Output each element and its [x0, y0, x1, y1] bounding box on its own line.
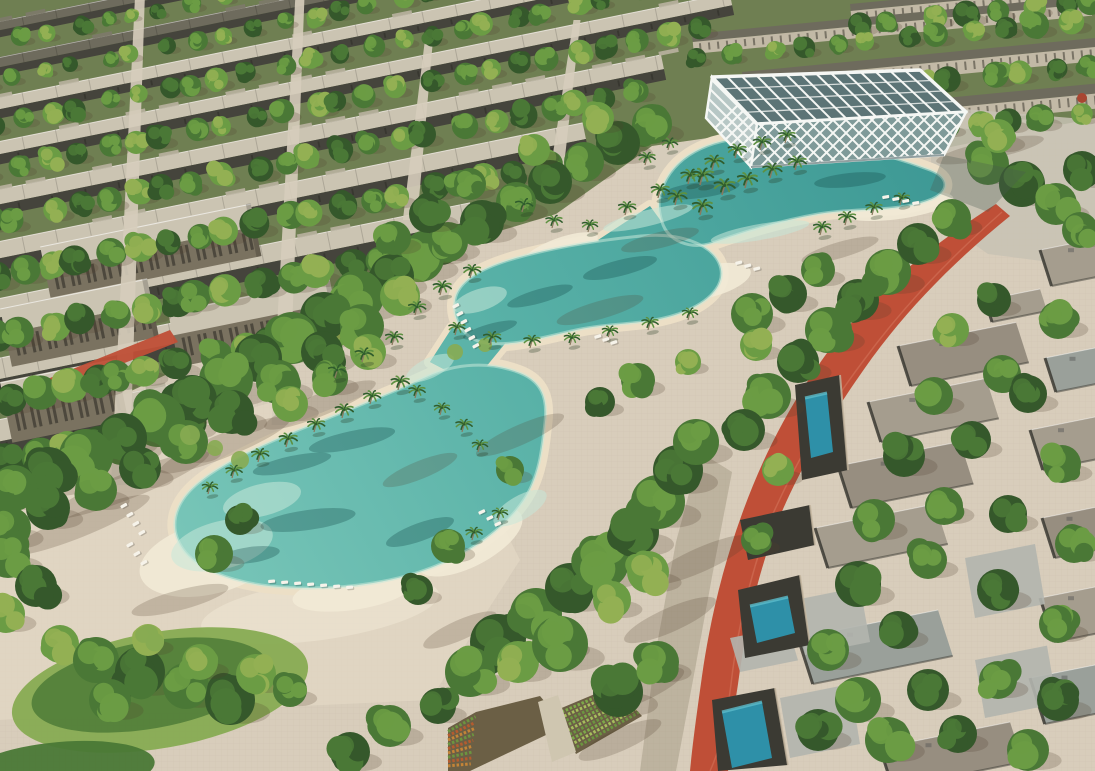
canopy-highlight — [628, 31, 640, 43]
canopy-highlight — [938, 316, 955, 333]
canopy-highlight — [406, 578, 421, 593]
canopy-highlight — [981, 573, 1002, 594]
palm-crown — [713, 160, 716, 163]
canopy-highlight — [72, 193, 84, 205]
canopy-highlight — [993, 498, 1012, 517]
canopy-highlight — [919, 380, 938, 399]
palm-crown — [473, 531, 475, 533]
canopy-highlight — [937, 69, 950, 82]
canopy-highlight — [971, 113, 984, 126]
roof-vent — [909, 398, 915, 402]
canopy-clump — [232, 410, 258, 436]
palm-crown — [846, 216, 849, 219]
canopy-highlight — [901, 227, 922, 248]
canopy-highlight — [841, 283, 862, 304]
canopy-highlight — [765, 457, 781, 473]
canopy-highlight — [131, 359, 146, 374]
canopy-highlight — [397, 32, 406, 41]
canopy-highlight — [811, 633, 832, 654]
canopy-clump — [254, 19, 262, 27]
canopy-clump — [83, 25, 91, 33]
canopy-clump — [572, 165, 588, 181]
canopy-highlight — [123, 451, 144, 472]
palm-crown — [649, 321, 651, 323]
canopy-highlight — [850, 14, 862, 26]
canopy-highlight — [105, 53, 113, 61]
canopy-highlight — [42, 254, 55, 267]
palm-crown — [553, 219, 555, 221]
canopy-highlight — [251, 159, 264, 172]
canopy-highlight — [6, 320, 22, 336]
canopy-clump — [132, 95, 139, 102]
canopy-highlight — [151, 176, 163, 188]
canopy-clump — [403, 39, 411, 47]
palm-crown — [669, 142, 671, 144]
canopy-highlight — [148, 127, 160, 139]
canopy-highlight — [628, 82, 640, 94]
canopy-highlight — [585, 105, 601, 121]
roof-vent — [926, 743, 932, 747]
palm-crown — [343, 408, 346, 411]
canopy-highlight — [188, 120, 200, 132]
canopy-highlight — [129, 181, 142, 194]
canopy-highlight — [65, 100, 77, 112]
canopy-highlight — [1041, 683, 1062, 704]
canopy-highlight — [5, 70, 14, 79]
canopy-highlight — [354, 87, 366, 99]
canopy-highlight — [735, 297, 756, 318]
canopy-highlight — [424, 175, 438, 189]
canopy-highlight — [199, 538, 218, 557]
render-canvas — [0, 0, 1095, 771]
canopy-highlight — [804, 256, 821, 273]
canopy-highlight — [870, 253, 893, 276]
palm-crown — [723, 184, 726, 187]
palm-crown — [399, 380, 402, 383]
canopy-highlight — [636, 108, 656, 128]
canopy-highlight — [840, 565, 863, 588]
canopy-highlight — [129, 236, 143, 250]
canopy-highlight — [45, 104, 56, 115]
canopy-highlight — [384, 280, 404, 300]
palm-crown — [689, 174, 692, 177]
canopy-highlight — [450, 652, 475, 677]
canopy-highlight — [597, 584, 616, 603]
canopy-clump — [159, 185, 174, 200]
roof-vent — [1068, 248, 1074, 252]
canopy-highlight — [344, 308, 366, 330]
canopy-highlight — [19, 569, 40, 590]
canopy-highlight — [386, 78, 397, 89]
canopy-highlight — [238, 64, 248, 74]
canopy-highlight — [64, 58, 72, 66]
canopy-highlight — [93, 683, 114, 704]
canopy-highlight — [563, 92, 576, 105]
canopy-highlight — [911, 673, 932, 694]
canopy-highlight — [691, 18, 703, 30]
canopy-highlight — [595, 90, 606, 101]
canopy-highlight — [957, 424, 976, 443]
canopy-highlight — [332, 47, 341, 56]
canopy-highlight — [580, 540, 607, 567]
canopy-clump — [1008, 27, 1018, 37]
canopy-highlight — [190, 33, 200, 43]
canopy-highlight — [773, 278, 792, 297]
canopy-highlight — [878, 13, 888, 23]
canopy-highlight — [413, 198, 432, 217]
flowering-shrub — [1077, 93, 1087, 103]
palm-crown — [589, 224, 591, 226]
canopy-highlight — [41, 148, 53, 160]
canopy-highlight — [40, 64, 48, 72]
canopy-highlight — [983, 664, 1002, 683]
canopy-clump — [34, 587, 54, 607]
canopy-highlight — [45, 628, 64, 647]
canopy-clump — [24, 112, 34, 122]
canopy-highlight — [989, 2, 1000, 13]
sun-lounger — [333, 584, 340, 588]
canopy-highlight — [472, 14, 484, 26]
palm-crown — [499, 512, 501, 514]
canopy-clump — [214, 80, 224, 90]
canopy-highlight — [210, 680, 235, 705]
canopy-highlight — [801, 713, 822, 734]
canopy-highlight — [341, 252, 356, 267]
canopy-highlight — [75, 18, 84, 27]
canopy-highlight — [332, 194, 346, 208]
canopy-clump — [341, 6, 350, 15]
canopy-highlight — [104, 363, 119, 378]
canopy-highlight — [781, 345, 802, 366]
canopy-highlight — [64, 434, 91, 461]
canopy-highlight — [15, 109, 25, 119]
canopy-highlight — [190, 226, 203, 239]
canopy-highlight — [120, 652, 145, 677]
canopy-highlight — [1059, 528, 1078, 547]
canopy-highlight — [1080, 57, 1091, 68]
canopy-clump — [186, 682, 206, 702]
canopy-highlight — [45, 315, 59, 329]
canopy-highlight — [212, 219, 227, 234]
canopy-highlight — [151, 5, 159, 13]
canopy-highlight — [544, 98, 557, 111]
palm-crown — [523, 203, 526, 206]
canopy-highlight — [279, 58, 289, 68]
canopy-highlight — [901, 29, 911, 39]
canopy-highlight — [99, 189, 112, 202]
canopy-highlight — [67, 306, 82, 321]
palm-crown — [746, 177, 749, 180]
canopy-highlight — [135, 296, 150, 311]
canopy-highlight — [160, 39, 169, 48]
palm-crown — [336, 369, 339, 372]
palm-crown — [315, 423, 318, 426]
canopy-highlight — [423, 72, 434, 83]
palm-crown — [531, 339, 533, 341]
canopy-highlight — [929, 490, 948, 509]
canopy-highlight — [249, 108, 259, 118]
canopy-clump — [111, 145, 121, 155]
canopy-highlight — [641, 645, 662, 666]
canopy-highlight — [598, 672, 623, 697]
canopy-highlight — [1011, 733, 1032, 754]
canopy-highlight — [214, 394, 236, 416]
palm-crown — [786, 134, 788, 136]
canopy-highlight — [131, 86, 140, 95]
canopy-highlight — [659, 24, 671, 36]
palm-crown — [456, 326, 458, 328]
canopy-highlight — [102, 136, 113, 147]
canopy-highlight — [499, 459, 513, 473]
canopy-highlight — [316, 363, 334, 381]
shrub — [207, 440, 223, 456]
canopy-highlight — [926, 7, 938, 19]
canopy-clump — [1081, 114, 1092, 125]
canopy-highlight — [135, 627, 151, 643]
canopy-highlight — [483, 61, 493, 71]
canopy-highlight — [62, 248, 77, 263]
canopy-highlight — [689, 50, 699, 60]
canopy-highlight — [532, 164, 554, 186]
canopy-highlight — [27, 378, 44, 395]
canopy-highlight — [11, 157, 22, 168]
canopy-highlight — [631, 555, 652, 576]
palm-crown — [901, 197, 903, 199]
canopy-highlight — [532, 5, 542, 15]
canopy-clump — [542, 9, 551, 18]
canopy-highlight — [1025, 14, 1039, 28]
canopy-highlight — [1010, 63, 1022, 75]
canopy-highlight — [501, 645, 522, 666]
canopy-highlight — [204, 358, 231, 385]
palm-crown — [471, 269, 474, 272]
canopy-highlight — [331, 140, 343, 152]
canopy-highlight — [13, 29, 22, 38]
canopy-highlight — [455, 115, 468, 128]
canopy-highlight — [723, 46, 733, 56]
canopy-highlight — [500, 186, 520, 206]
palm-crown — [689, 312, 691, 314]
canopy-highlight — [588, 390, 603, 405]
canopy-highlight — [68, 145, 79, 156]
canopy-highlight — [1073, 105, 1084, 116]
canopy-highlight — [302, 258, 319, 275]
canopy-highlight — [103, 91, 112, 100]
sun-lounger — [268, 579, 275, 583]
canopy-highlight — [298, 202, 312, 216]
canopy-highlight — [28, 452, 53, 477]
canopy-highlight — [387, 186, 399, 198]
canopy-highlight — [597, 38, 609, 50]
canopy-highlight — [46, 200, 58, 212]
canopy-highlight — [1039, 187, 1060, 208]
canopy-highlight — [840, 681, 863, 704]
canopy-clump — [1048, 466, 1064, 482]
canopy-highlight — [678, 423, 701, 446]
canopy-highlight — [181, 283, 197, 299]
canopy-highlight — [393, 129, 405, 141]
canopy-highlight — [1043, 304, 1062, 323]
canopy-highlight — [136, 398, 163, 425]
palm-crown — [416, 306, 419, 309]
canopy-highlight — [366, 38, 377, 49]
canopy-highlight — [503, 163, 515, 175]
roof-vent — [1068, 596, 1074, 600]
canopy-highlight — [1, 210, 13, 222]
palm-crown — [761, 141, 764, 144]
canopy-highlight — [281, 265, 297, 281]
canopy-highlight — [331, 2, 341, 12]
canopy-highlight — [857, 34, 866, 43]
canopy-highlight — [796, 38, 807, 49]
canopy-highlight — [213, 118, 223, 128]
canopy-highlight — [937, 202, 956, 221]
canopy-highlight — [571, 42, 583, 54]
palm-crown — [626, 206, 629, 209]
canopy-highlight — [240, 658, 260, 678]
canopy-highlight — [744, 528, 759, 543]
canopy-highlight — [126, 10, 133, 17]
canopy-highlight — [207, 70, 219, 82]
canopy-highlight — [510, 53, 521, 64]
palm-crown — [646, 156, 648, 158]
roof-vent — [1062, 676, 1068, 680]
canopy-highlight — [515, 593, 541, 619]
palm-crown — [609, 330, 611, 332]
canopy-highlight — [182, 77, 193, 88]
palm-crown — [363, 352, 366, 355]
canopy-highlight — [883, 614, 902, 633]
canopy-clump — [1074, 543, 1093, 562]
palm-crown — [416, 389, 418, 391]
canopy-highlight — [727, 413, 748, 434]
canopy-highlight — [127, 133, 139, 145]
palm-crown — [821, 226, 824, 229]
canopy-highlight — [246, 21, 255, 30]
canopy-highlight — [998, 19, 1009, 30]
canopy-highlight — [514, 104, 527, 117]
canopy-clump — [1064, 464, 1080, 480]
palm-crown — [676, 195, 679, 198]
canopy-highlight — [279, 14, 287, 22]
roof-vent — [1070, 357, 1076, 361]
canopy-highlight — [308, 9, 318, 19]
palm-crown — [209, 486, 211, 488]
palm-crown — [287, 437, 290, 440]
canopy-clump — [159, 126, 172, 139]
palm-crown — [371, 395, 374, 398]
canopy-highlight — [1029, 107, 1043, 121]
palm-crown — [441, 407, 443, 409]
canopy-highlight — [278, 155, 289, 166]
canopy-highlight — [678, 351, 691, 364]
canopy-highlight — [99, 241, 113, 255]
canopy-highlight — [79, 473, 100, 494]
canopy-highlight — [276, 389, 294, 407]
palm-crown — [393, 336, 396, 339]
canopy-highlight — [412, 123, 425, 136]
canopy-highlight — [298, 147, 310, 159]
palm-crown — [701, 204, 704, 207]
canopy-clump — [805, 48, 814, 57]
palm-crown — [233, 469, 235, 471]
canopy-highlight — [538, 621, 566, 649]
canopy-highlight — [228, 508, 243, 523]
canopy-highlight — [78, 641, 101, 664]
canopy-highlight — [303, 50, 313, 60]
canopy-highlight — [1043, 608, 1062, 627]
canopy-highlight — [926, 25, 938, 37]
palm-crown — [771, 168, 774, 171]
canopy-highlight — [260, 364, 282, 386]
canopy-highlight — [305, 335, 326, 356]
canopy-highlight — [182, 173, 193, 184]
canopy-highlight — [512, 8, 522, 18]
canopy-clump — [1010, 503, 1026, 519]
canopy-highlight — [158, 233, 170, 245]
canopy-highlight — [456, 65, 467, 76]
canopy-highlight — [305, 296, 329, 320]
aerial-masterplan-render — [0, 0, 1095, 771]
canopy-highlight — [857, 503, 878, 524]
canopy-highlight — [913, 544, 932, 563]
canopy-highlight — [40, 26, 49, 35]
palm-crown — [479, 444, 481, 446]
canopy-highlight — [186, 647, 204, 665]
canopy-highlight — [242, 211, 257, 226]
sun-lounger — [281, 580, 288, 584]
canopy-highlight — [987, 358, 1006, 377]
canopy-clump — [471, 181, 485, 195]
canopy-highlight — [476, 619, 504, 647]
canopy-highlight — [887, 439, 908, 460]
sun-lounger — [294, 581, 301, 585]
canopy-highlight — [464, 204, 486, 226]
canopy-highlight — [276, 676, 293, 693]
canopy-highlight — [1066, 215, 1084, 233]
canopy-clump — [586, 156, 602, 172]
palm-crown — [796, 160, 799, 163]
canopy-highlight — [966, 22, 976, 32]
palm-crown — [259, 453, 262, 456]
canopy-highlight — [380, 224, 397, 241]
canopy-highlight — [434, 532, 451, 549]
canopy-highlight — [550, 568, 575, 593]
shrub — [231, 451, 249, 469]
sun-lounger — [307, 582, 314, 586]
canopy-highlight — [456, 22, 466, 32]
shrub — [447, 344, 463, 360]
canopy-highlight — [55, 371, 72, 388]
canopy-highlight — [750, 377, 773, 400]
palm-crown — [659, 188, 662, 191]
canopy-highlight — [521, 137, 537, 153]
canopy-highlight — [212, 164, 224, 176]
palm-crown — [701, 173, 704, 176]
roof-vent — [1067, 517, 1073, 521]
palm-crown — [491, 336, 494, 339]
canopy-highlight — [1013, 378, 1032, 397]
canopy-highlight — [943, 718, 962, 737]
canopy-highlight — [163, 350, 179, 366]
canopy-highlight — [30, 490, 52, 512]
sun-lounger — [320, 583, 327, 587]
canopy-clump — [6, 611, 25, 630]
canopy-clump — [246, 675, 266, 695]
canopy-highlight — [425, 29, 435, 39]
canopy-highlight — [122, 46, 131, 55]
sun-lounger — [346, 585, 353, 589]
